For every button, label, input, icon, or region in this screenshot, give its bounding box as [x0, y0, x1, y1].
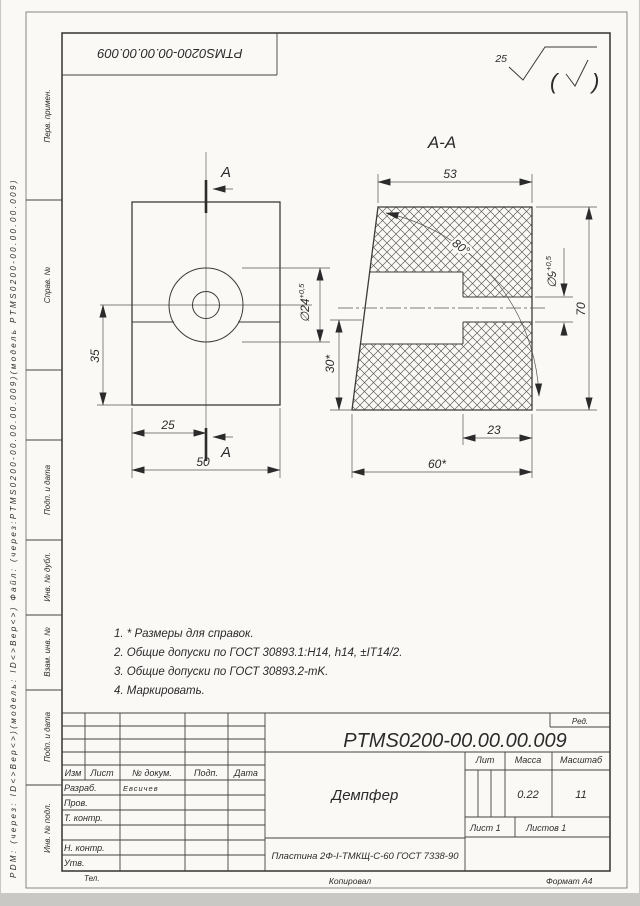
- row-t-kontr: Т. контр.: [64, 813, 103, 823]
- section-title: А-А: [427, 133, 456, 152]
- cut-label-bottom: А: [220, 444, 231, 461]
- dim-50: 50: [196, 455, 210, 469]
- lit-label: Лит: [475, 755, 495, 765]
- copied-label: Копировал: [329, 876, 371, 886]
- razrab-name: Евсичев: [123, 784, 159, 793]
- side-label-sprav-no: Справ. №: [43, 266, 52, 303]
- format-label: Формат А4: [546, 876, 593, 886]
- scale-value: 11: [575, 789, 586, 801]
- col-izm: Изм: [65, 768, 82, 778]
- row-prov: Пров.: [64, 798, 88, 808]
- row-n-kontr: Н. контр.: [64, 843, 105, 853]
- note-1: 1. * Размеры для справок.: [114, 628, 254, 640]
- side-label-perv-primen: Перв. примен.: [43, 89, 52, 142]
- note-3: 3. Общие допуски по ГОСТ 30893.2-mK.: [114, 666, 328, 678]
- dim-53: 53: [443, 167, 457, 181]
- dim-23: 23: [486, 423, 501, 437]
- note-4: 4. Маркировать.: [114, 685, 205, 697]
- scale-label: Масштаб: [560, 755, 603, 765]
- dim-25: 25: [160, 418, 175, 432]
- dim-60: 60*: [428, 457, 446, 471]
- material-spec: Пластина 2Ф-I-ТМКЩ-С-60 ГОСТ 7338-90: [271, 851, 459, 862]
- dim-35: 35: [88, 349, 102, 363]
- margin-pdm-text: PDM: (через: ID<>Вер<>)(модель: ID<>Вер<…: [9, 178, 18, 878]
- side-label-podp-data-2: Подп. и дата: [43, 711, 52, 762]
- red-label: Ред.: [572, 717, 588, 726]
- side-label-inv-dubl: Инв. № дубл.: [43, 552, 52, 601]
- sheet-number: Лист 1: [469, 823, 501, 833]
- side-label-vzam-inv: Взам. инв. №: [43, 627, 52, 677]
- designation-text: PTMS0200-00.00.00.009: [343, 730, 567, 752]
- sheets-total: Листов 1: [525, 823, 566, 833]
- tel-label: Тел.: [84, 874, 100, 883]
- col-podp: Подп.: [194, 768, 218, 778]
- cut-label-top: А: [220, 164, 231, 181]
- gost-drawing-svg: PDM: (через: ID<>Вер<>)(модель: ID<>Вер<…: [0, 0, 640, 906]
- mass-value: 0.22: [517, 789, 538, 801]
- roughness-value: 25: [494, 53, 507, 65]
- dim-70: 70: [574, 302, 588, 316]
- side-label-podp-data-1: Подп. и дата: [43, 464, 52, 515]
- top-designation-text: PTMS0200-00.00.00.009: [97, 46, 242, 61]
- mass-label: Масса: [515, 755, 542, 765]
- col-data: Дата: [233, 768, 258, 778]
- part-name: Демпфер: [330, 787, 399, 804]
- dim-30: 30*: [323, 355, 337, 373]
- side-label-inv-podl: Инв. № подл.: [43, 803, 52, 853]
- scanned-drawing-sheet: PDM: (через: ID<>Вер<>)(модель: ID<>Вер<…: [0, 0, 640, 906]
- paper: [1, 0, 639, 893]
- row-razrab: Разраб.: [64, 783, 97, 793]
- col-list: Лист: [89, 768, 114, 778]
- row-utv: Утв.: [63, 858, 84, 868]
- col-dokum: № докум.: [132, 768, 172, 778]
- note-2: 2. Общие допуски по ГОСТ 30893.1:H14, h1…: [113, 647, 402, 659]
